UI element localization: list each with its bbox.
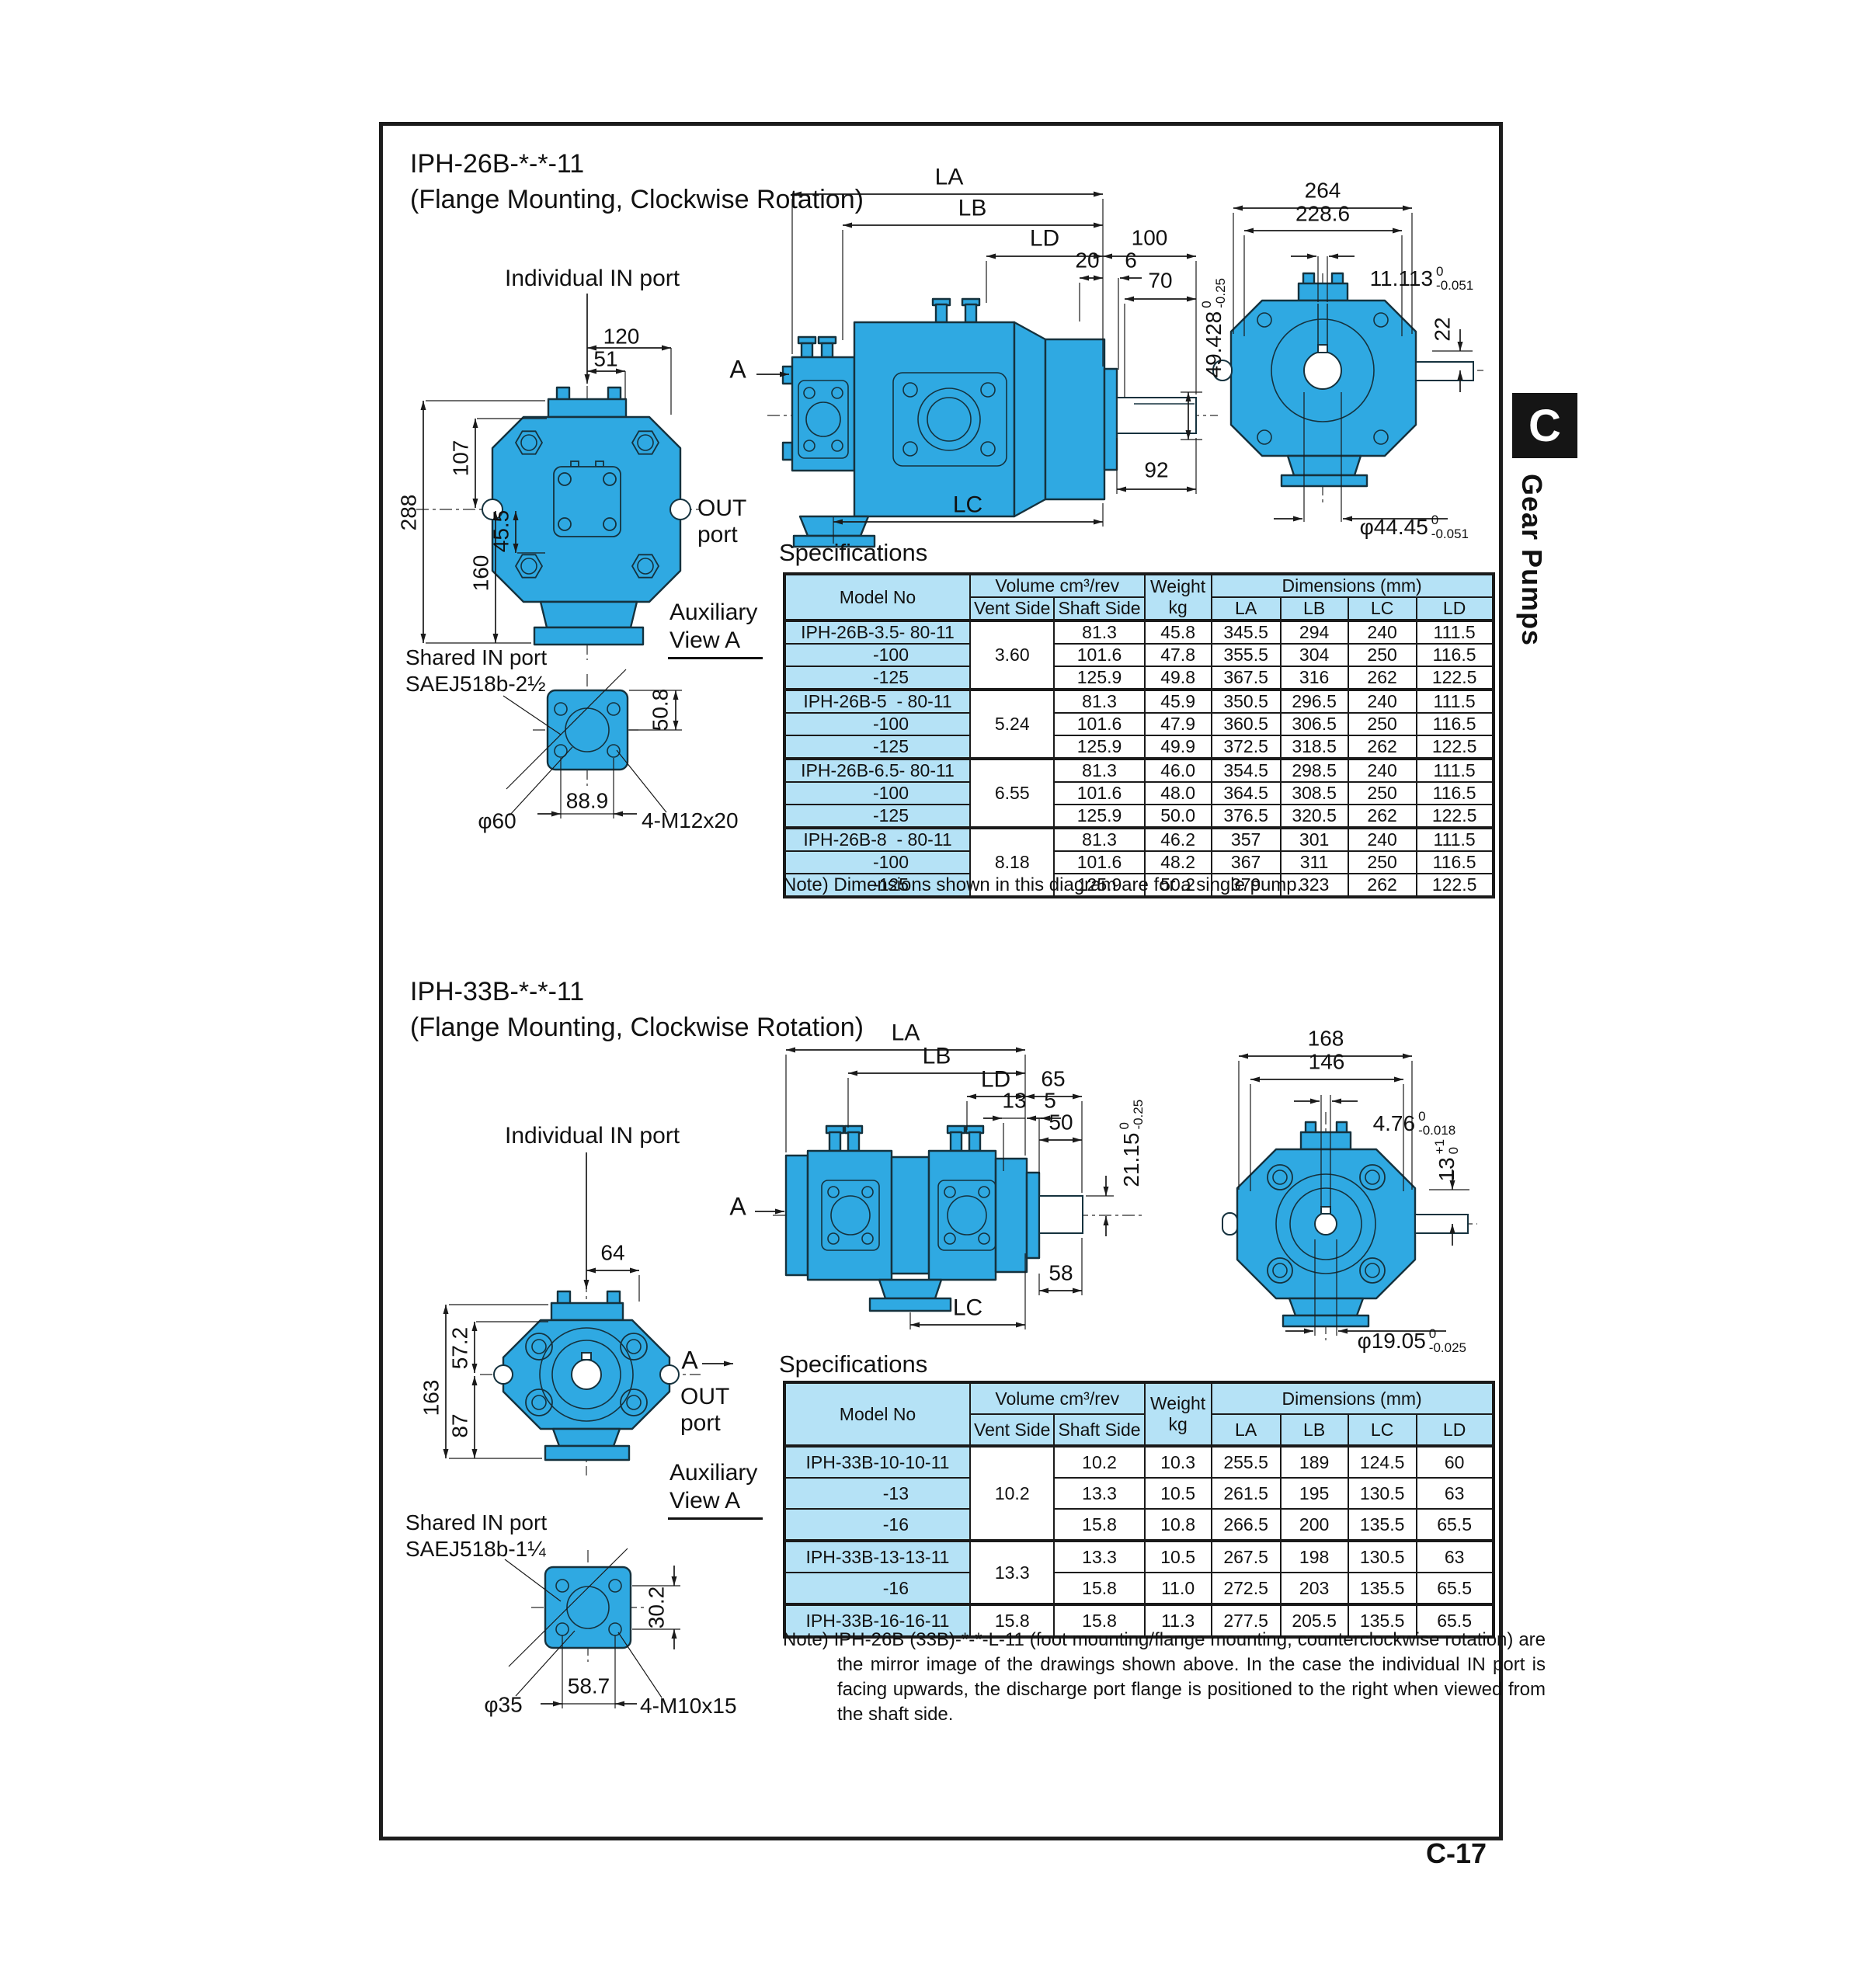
dim-ld-1: LD [1030, 226, 1059, 252]
aux-view-label-2b: View A [669, 1488, 740, 1514]
dim-49-428-tol: 49.4280-0.25 [1176, 278, 1229, 390]
section1-title: IPH-26B-*-*-11 [410, 150, 584, 179]
dim-dia19-05-tol: φ19.050-0.025 [1345, 1303, 1466, 1356]
dim-la-1: LA [935, 165, 964, 190]
la-cell: 355.5 [1212, 644, 1281, 666]
lb-cell: 200 [1281, 1509, 1348, 1541]
lb-cell: 306.5 [1281, 713, 1348, 735]
model-no-cell: IPH-26B-3.5- 80-11 [784, 620, 970, 644]
spec-table-iph33b: Model NoVolume cm³/revWeightkgDimensions… [783, 1381, 1495, 1639]
dim-88-9: 88.9 [566, 790, 609, 814]
dim-45-5: 45.5 [490, 510, 514, 553]
col-header-dimensions: Dimensions (mm) [1212, 574, 1494, 597]
aux-view-label-1b: View A [669, 627, 740, 653]
col-header-lb: LB [1281, 1414, 1348, 1446]
pump-side-body-33b [786, 1126, 1083, 1311]
la-cell: 272.5 [1212, 1573, 1281, 1604]
view-arrow-a-2: A [729, 1193, 746, 1220]
shaft-cell: 101.6 [1054, 644, 1144, 666]
dim-30-2: 30.2 [645, 1587, 669, 1629]
shaft-cell: 13.3 [1054, 1541, 1144, 1573]
col-header-la: LA [1212, 597, 1281, 620]
ld-cell: 122.5 [1417, 666, 1494, 690]
lc-cell: 240 [1348, 759, 1417, 782]
ld-cell: 65.5 [1417, 1509, 1494, 1541]
ld-cell: 116.5 [1417, 851, 1494, 874]
col-header-volume: Volume cm³/rev [970, 574, 1145, 597]
dim-21-15-tol: 21.150-0.25 [1094, 1100, 1146, 1199]
la-cell: 372.5 [1212, 735, 1281, 759]
table-row: IPH-26B-3.5- 80-113.6081.345.8345.529424… [784, 620, 1494, 644]
weight-cell: 11.0 [1145, 1573, 1212, 1604]
section2-title: IPH-33B-*-*-11 [410, 978, 584, 1006]
dim-50: 50 [1049, 1111, 1073, 1135]
shared-in-port-label-1: Shared IN port [405, 646, 547, 670]
ld-cell: 60 [1417, 1446, 1494, 1478]
ld-cell: 116.5 [1417, 782, 1494, 805]
col-header-ld: LD [1417, 1414, 1494, 1446]
dim-6: 6 [1125, 249, 1137, 273]
lb-cell: 318.5 [1281, 735, 1348, 759]
out-port-label-2a: OUT [680, 1384, 729, 1409]
lc-cell: 262 [1348, 735, 1417, 759]
shaft-cell: 101.6 [1054, 782, 1144, 805]
dim-70: 70 [1148, 269, 1172, 294]
dim-lb-2: LB [923, 1044, 951, 1069]
shaft-cell: 101.6 [1054, 713, 1144, 735]
col-header-shaft-side: Shaft Side [1054, 1414, 1144, 1446]
table-row: IPH-26B-5 - 80-115.2481.345.9350.5296.52… [784, 690, 1494, 713]
individual-in-port-label-1: Individual IN port [505, 266, 680, 291]
weight-cell: 10.5 [1145, 1541, 1212, 1573]
aux-view-underline-1 [668, 657, 763, 659]
ld-cell: 116.5 [1417, 713, 1494, 735]
la-cell: 354.5 [1212, 759, 1281, 782]
out-port-label-1b: port [697, 522, 738, 547]
model-no-cell: -100 [784, 851, 970, 874]
ld-cell: 65.5 [1417, 1573, 1494, 1604]
weight-cell: 47.8 [1145, 644, 1212, 666]
ld-cell: 122.5 [1417, 735, 1494, 759]
shaft-cell: 13.3 [1054, 1478, 1144, 1509]
pump-front-body-33b [494, 1291, 679, 1460]
table-row: -125125.950.0376.5320.5262122.5 [784, 805, 1494, 828]
col-header-model: Model No [784, 1382, 970, 1446]
shaft-cell: 81.3 [1054, 759, 1144, 782]
lc-cell: 124.5 [1348, 1446, 1417, 1478]
aux-view-label-2a: Auxiliary [669, 1460, 757, 1486]
aux-view-underline-2 [668, 1517, 763, 1520]
weight-cell: 49.8 [1145, 666, 1212, 690]
table-row: -100101.647.8355.5304250116.5 [784, 644, 1494, 666]
col-header-vent-side: Vent Side [970, 1414, 1054, 1446]
catalog-page: { "page": { "tab_letter": "C", "tab_labe… [0, 0, 1871, 1988]
lb-cell: 301 [1281, 828, 1348, 851]
shaft-cell: 125.9 [1054, 666, 1144, 690]
dim-228-6: 228.6 [1295, 203, 1350, 227]
spec-heading-1: Specifications [779, 540, 927, 566]
table-row: -100101.648.2367311250116.5 [784, 851, 1494, 874]
pump-rear-body [1213, 273, 1473, 486]
la-cell: 357 [1212, 828, 1281, 851]
col-header-shaft-side: Shaft Side [1054, 597, 1144, 620]
dim-la-2: LA [892, 1020, 920, 1046]
dim-92: 92 [1144, 459, 1168, 483]
dim-288: 288 [398, 495, 422, 531]
dim-100: 100 [1132, 227, 1168, 251]
shaft-cell: 81.3 [1054, 828, 1144, 851]
dim-13-key-tol: 13+10 [1409, 1139, 1462, 1194]
weight-cell: 45.9 [1145, 690, 1212, 713]
model-no-cell: -100 [784, 713, 970, 735]
vent-side-cell: 10.2 [970, 1446, 1054, 1541]
lc-cell: 130.5 [1348, 1478, 1417, 1509]
la-cell: 266.5 [1212, 1509, 1281, 1541]
shaft-cell: 10.2 [1054, 1446, 1144, 1478]
shaft-cell: 101.6 [1054, 851, 1144, 874]
table-row: IPH-26B-8 - 80-118.1881.346.235730124011… [784, 828, 1494, 851]
lc-cell: 130.5 [1348, 1541, 1417, 1573]
spec-heading-2: Specifications [779, 1351, 927, 1378]
lc-cell: 250 [1348, 851, 1417, 874]
col-header-lc: LC [1348, 597, 1417, 620]
lb-cell: 294 [1281, 620, 1348, 644]
table-row: IPH-26B-6.5- 80-116.5581.346.0354.5298.5… [784, 759, 1494, 782]
vent-side-cell: 13.3 [970, 1541, 1054, 1604]
la-cell: 267.5 [1212, 1541, 1281, 1573]
side-view-iph33b-drawing [722, 1025, 1157, 1336]
dim-50-8: 50.8 [649, 689, 673, 732]
weight-cell: 47.9 [1145, 713, 1212, 735]
out-port-label-2b: port [680, 1410, 721, 1436]
dim-107: 107 [450, 440, 474, 477]
table-row: -1615.810.8266.5200135.565.5 [784, 1509, 1494, 1541]
la-cell: 376.5 [1212, 805, 1281, 828]
table-row: IPH-33B-10-10-1110.210.210.3255.5189124.… [784, 1446, 1494, 1478]
dim-51: 51 [593, 348, 617, 372]
dim-bolts-m12: 4-M12x20 [642, 809, 739, 833]
lb-cell: 203 [1281, 1573, 1348, 1604]
lc-cell: 262 [1348, 874, 1417, 897]
dim-58-7: 58.7 [568, 1675, 610, 1699]
la-cell: 367 [1212, 851, 1281, 874]
dim-264: 264 [1305, 179, 1341, 203]
dim-163: 163 [420, 1380, 444, 1416]
col-header-weight: Weightkg [1145, 574, 1212, 620]
weight-cell: 46.2 [1145, 828, 1212, 851]
weight-cell: 49.9 [1145, 735, 1212, 759]
col-header-lc: LC [1348, 1414, 1417, 1446]
dim-87: 87 [449, 1413, 473, 1437]
lb-cell: 195 [1281, 1478, 1348, 1509]
col-header-weight: Weightkg [1145, 1382, 1212, 1446]
col-header-vent-side: Vent Side [970, 597, 1054, 620]
dim-160: 160 [470, 555, 494, 592]
model-no-cell: -125 [784, 666, 970, 690]
dim-168: 168 [1308, 1027, 1344, 1051]
la-cell: 255.5 [1212, 1446, 1281, 1478]
dim-11-113-tol: 11.1130-0.051 [1358, 241, 1473, 294]
dim-22: 22 [1431, 317, 1455, 341]
ld-cell: 111.5 [1417, 759, 1494, 782]
model-no-cell: -16 [784, 1509, 970, 1541]
col-header-ld: LD [1417, 597, 1494, 620]
dim-4-76-tol: 4.760-0.018 [1361, 1086, 1455, 1138]
aux-view-label-1a: Auxiliary [669, 600, 757, 625]
shaft-cell: 81.3 [1054, 620, 1144, 644]
model-no-cell: -125 [784, 805, 970, 828]
lc-cell: 240 [1348, 828, 1417, 851]
pump-side-body [783, 299, 1196, 547]
weight-cell: 48.0 [1145, 782, 1212, 805]
shaft-cell: 15.8 [1054, 1573, 1144, 1604]
dim-58: 58 [1049, 1262, 1073, 1286]
vent-side-cell: 6.55 [970, 759, 1054, 828]
lc-cell: 250 [1348, 644, 1417, 666]
ld-cell: 63 [1417, 1478, 1494, 1509]
out-port-label-1a: OUT [697, 495, 746, 521]
dim-146: 146 [1309, 1051, 1345, 1075]
lb-cell: 316 [1281, 666, 1348, 690]
weight-cell: 48.2 [1145, 851, 1212, 874]
model-no-cell: IPH-33B-10-10-11 [784, 1446, 970, 1478]
lb-cell: 320.5 [1281, 805, 1348, 828]
table-row: -125125.949.9372.5318.5262122.5 [784, 735, 1494, 759]
model-no-cell: -13 [784, 1478, 970, 1509]
dim-bolts-m10: 4-M10x15 [640, 1694, 737, 1719]
la-cell: 345.5 [1212, 620, 1281, 644]
front-view-iph33b-drawing [388, 1110, 715, 1732]
lb-cell: 308.5 [1281, 782, 1348, 805]
lb-cell: 296.5 [1281, 690, 1348, 713]
lb-cell: 304 [1281, 644, 1348, 666]
section1-subtitle: (Flange Mounting, Clockwise Rotation) [410, 186, 864, 214]
page-number: C-17 [1426, 1837, 1487, 1870]
lb-cell: 189 [1281, 1446, 1348, 1478]
dim-lc-2: LC [953, 1295, 982, 1321]
dim-120: 120 [603, 325, 640, 349]
dim-57-2: 57.2 [449, 1327, 473, 1370]
lc-cell: 240 [1348, 690, 1417, 713]
dim-dia35: φ35 [484, 1694, 522, 1718]
ld-cell: 116.5 [1417, 644, 1494, 666]
model-no-cell: -100 [784, 782, 970, 805]
ld-cell: 63 [1417, 1541, 1494, 1573]
la-cell: 261.5 [1212, 1478, 1281, 1509]
shared-in-port-spec-2: SAEJ518b-1¼ [405, 1538, 546, 1562]
lc-cell: 240 [1348, 620, 1417, 644]
ld-cell: 111.5 [1417, 620, 1494, 644]
note-1: Note) Dimensions shown in this diagram a… [783, 873, 1302, 898]
view-arrow-a-1: A [729, 356, 746, 383]
col-header-volume: Volume cm³/rev [970, 1382, 1145, 1414]
dim-13: 13 [1002, 1090, 1026, 1114]
col-header-la: LA [1212, 1414, 1281, 1446]
model-no-cell: IPH-26B-8 - 80-11 [784, 828, 970, 851]
weight-cell: 10.3 [1145, 1446, 1212, 1478]
shared-in-port-label-2: Shared IN port [405, 1511, 547, 1535]
front-view-iph26b-drawing [388, 256, 715, 846]
model-no-cell: -100 [784, 644, 970, 666]
dim-20: 20 [1075, 249, 1099, 273]
ld-cell: 122.5 [1417, 874, 1494, 897]
weight-cell: 45.8 [1145, 620, 1212, 644]
table-row: -100101.647.9360.5306.5250116.5 [784, 713, 1494, 735]
section2-subtitle: (Flange Mounting, Clockwise Rotation) [410, 1013, 864, 1042]
model-no-cell: IPH-26B-5 - 80-11 [784, 690, 970, 713]
table-row: -100101.648.0364.5308.5250116.5 [784, 782, 1494, 805]
shaft-cell: 125.9 [1054, 805, 1144, 828]
individual-in-port-label-2: Individual IN port [505, 1123, 680, 1149]
la-cell: 350.5 [1212, 690, 1281, 713]
col-header-lb: LB [1281, 597, 1348, 620]
note-2: Note) IPH-26B (33B)-*-*-L-11 (foot mount… [783, 1628, 1546, 1728]
weight-cell: 46.0 [1145, 759, 1212, 782]
vent-side-cell: 3.60 [970, 620, 1054, 690]
model-no-cell: IPH-26B-6.5- 80-11 [784, 759, 970, 782]
shaft-cell: 81.3 [1054, 690, 1144, 713]
dim-dia44-45-tol: φ44.450-0.051 [1348, 489, 1469, 542]
weight-cell: 10.5 [1145, 1478, 1212, 1509]
chapter-tab: C [1512, 393, 1577, 458]
ld-cell: 111.5 [1417, 690, 1494, 713]
col-header-dimensions: Dimensions (mm) [1212, 1382, 1494, 1414]
table-row: -1615.811.0272.5203135.565.5 [784, 1573, 1494, 1604]
weight-cell: 10.8 [1145, 1509, 1212, 1541]
dim-lc-1: LC [953, 492, 982, 518]
lc-cell: 135.5 [1348, 1573, 1417, 1604]
lb-cell: 298.5 [1281, 759, 1348, 782]
table-row: -1313.310.5261.5195130.563 [784, 1478, 1494, 1509]
table-row: -125125.949.8367.5316262122.5 [784, 666, 1494, 690]
out-view-arrow-a-2: A [681, 1347, 697, 1374]
shaft-cell: 125.9 [1054, 735, 1144, 759]
dim-64: 64 [600, 1242, 624, 1266]
dim-dia60: φ60 [478, 810, 516, 834]
la-cell: 367.5 [1212, 666, 1281, 690]
lc-cell: 135.5 [1348, 1509, 1417, 1541]
table-row: IPH-33B-13-13-1113.313.310.5267.5198130.… [784, 1541, 1494, 1573]
lc-cell: 250 [1348, 782, 1417, 805]
ld-cell: 111.5 [1417, 828, 1494, 851]
lc-cell: 250 [1348, 713, 1417, 735]
model-no-cell: IPH-33B-13-13-11 [784, 1541, 970, 1573]
la-cell: 360.5 [1212, 713, 1281, 735]
col-header-model: Model No [784, 574, 970, 620]
shared-in-port-spec-1: SAEJ518b-2½ [405, 673, 546, 697]
shaft-cell: 15.8 [1054, 1509, 1144, 1541]
chapter-tab-label: Gear Pumps [1515, 474, 1548, 646]
ld-cell: 122.5 [1417, 805, 1494, 828]
model-no-cell: -125 [784, 735, 970, 759]
lb-cell: 311 [1281, 851, 1348, 874]
lb-cell: 198 [1281, 1541, 1348, 1573]
weight-cell: 50.0 [1145, 805, 1212, 828]
la-cell: 364.5 [1212, 782, 1281, 805]
spec-table-iph26b: Model NoVolume cm³/revWeightkgDimensions… [783, 572, 1495, 898]
model-no-cell: -16 [784, 1573, 970, 1604]
lc-cell: 262 [1348, 666, 1417, 690]
lc-cell: 262 [1348, 805, 1417, 828]
dim-lb-1: LB [958, 196, 987, 221]
vent-side-cell: 5.24 [970, 690, 1054, 759]
